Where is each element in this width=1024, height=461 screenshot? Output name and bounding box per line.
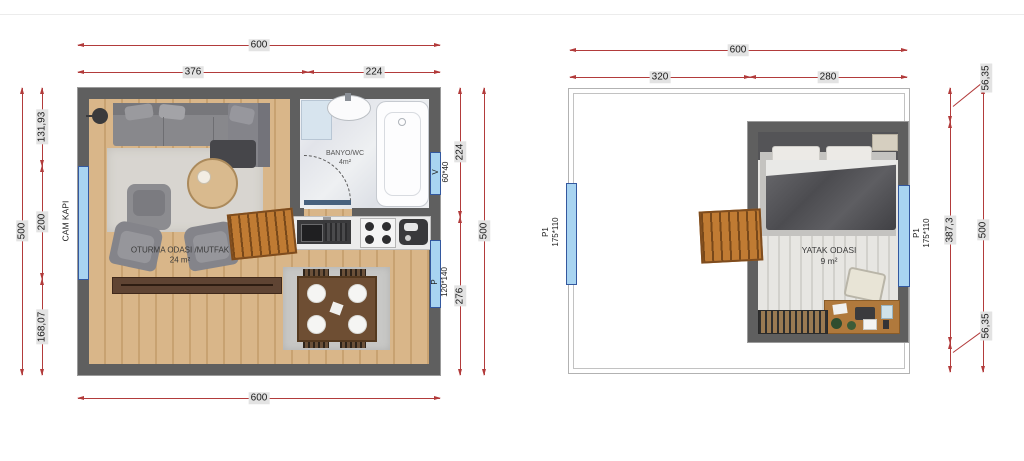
living-room-name: OTURMA ODASI /MUTFAK: [131, 246, 229, 256]
book-icon: [881, 305, 893, 319]
kitchen-appliance: [399, 219, 428, 245]
window-p1-right: [898, 185, 910, 287]
paper-icon: [832, 303, 847, 315]
kitchen-faucet-icon: [323, 217, 331, 220]
notepad-icon: [863, 319, 877, 330]
living-room-label: OTURMA ODASI /MUTFAK 24 m²: [131, 246, 229, 267]
window-p1-left-size: 175*110: [551, 217, 560, 246]
window-p1-right-size: 175*110: [922, 218, 931, 247]
floor-plan-canvas: 600 376 224 600 500 131,93 200 168,07 CA…: [0, 0, 1024, 461]
napkin-icon: [329, 301, 343, 315]
plate-icon: [348, 315, 367, 334]
sofa-pillow: [124, 103, 154, 121]
dimension-value: 56,35: [980, 63, 992, 92]
dimension-value: 600: [728, 44, 749, 56]
dimension-value: 56,35: [980, 311, 992, 340]
stairs: [699, 208, 764, 263]
window-v-label: V 60*40: [431, 162, 451, 183]
dimension-value: 168,07: [36, 310, 48, 345]
dimension-value: 376: [183, 66, 204, 78]
dimension-line: [950, 88, 951, 122]
dimension-value: 320: [650, 71, 671, 83]
dimension-line: [950, 343, 951, 372]
bedroom-label: YATAK ODASI 9 m²: [802, 245, 857, 267]
plate-icon: [307, 315, 326, 334]
page-top-rule: [0, 14, 1024, 15]
plate-icon: [348, 284, 367, 303]
window-v-size: 60*40: [441, 162, 450, 183]
dimension-value: 224: [364, 66, 385, 78]
dimension-value: 500: [16, 221, 28, 242]
window-v-name: V: [431, 169, 440, 174]
bathroom-door-leaf: [304, 200, 351, 205]
plate-icon: [307, 284, 326, 303]
bedroom-name: YATAK ODASI: [802, 245, 857, 256]
radiator: [758, 310, 828, 334]
dimension-value: 600: [249, 392, 270, 404]
dimension-value: 500: [977, 220, 989, 241]
living-room-area: 24 m²: [131, 256, 229, 266]
stairs: [227, 208, 297, 261]
window-p1-left-label: P1 175*110: [541, 217, 561, 246]
dimension-value: 200: [36, 212, 48, 233]
window-p1-right-label: P1 175*110: [912, 218, 932, 247]
dimension-value: 500: [478, 221, 490, 242]
nightstand: [872, 134, 898, 151]
dimension-value: 280: [818, 71, 839, 83]
sink-faucet-icon: [345, 93, 351, 101]
bathroom-area: 4m²: [326, 158, 364, 167]
desk: [824, 300, 900, 334]
dimension-value: 131,93: [36, 110, 48, 145]
window-p-size: 120*140: [440, 267, 449, 297]
bathtub-drain-icon: [398, 118, 406, 126]
plant-icon: [847, 321, 856, 330]
bathroom-label: BANYO/WC 4m²: [326, 149, 364, 167]
stove: [360, 218, 396, 248]
dimension-value: 224: [454, 142, 466, 163]
dining-table: [297, 276, 377, 342]
floor-lamp-arm: [86, 115, 96, 117]
phone-icon: [883, 320, 889, 329]
dimension-value: 387,3: [944, 215, 956, 244]
window-p1-left: [566, 183, 577, 285]
window-p-name: P: [430, 279, 439, 284]
dimension-value: 600: [249, 39, 270, 51]
sofa-pillow: [229, 105, 256, 126]
bathroom-name: BANYO/WC: [326, 149, 364, 158]
glass-door: [78, 166, 89, 280]
bathroom-bottom-wall: [352, 208, 429, 216]
dimension-value: 276: [454, 286, 466, 307]
coffee-table: [187, 158, 238, 209]
glass-door-label: CAM KAPI: [61, 201, 72, 242]
bedroom-area: 9 m²: [802, 256, 857, 267]
tv-console: [112, 277, 282, 294]
window-p1-left-name: P1: [541, 227, 550, 237]
kitchen-sink: [297, 220, 351, 244]
window-p1-right-name: P1: [912, 228, 921, 238]
plant-icon: [831, 318, 842, 329]
bathroom-partition-wall: [290, 99, 300, 216]
bathtub: [376, 101, 429, 207]
window-p-label: P 120*140: [430, 267, 450, 297]
